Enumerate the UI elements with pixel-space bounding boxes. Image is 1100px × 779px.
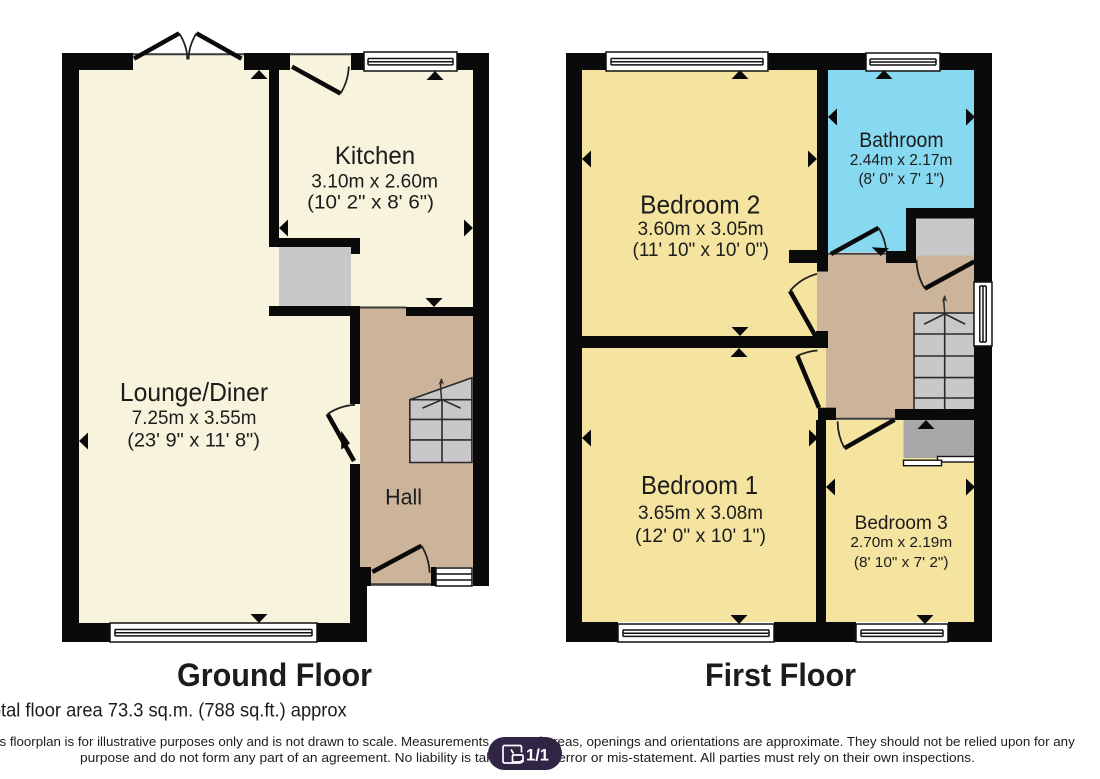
svg-text:Bedroom 2: Bedroom 2 [640, 190, 760, 220]
svg-text:(8' 0" x 7' 1"): (8' 0" x 7' 1") [858, 171, 944, 188]
svg-text:First Floor: First Floor [705, 657, 856, 693]
svg-text:3.10m x 2.60m: 3.10m x 2.60m [311, 172, 438, 193]
svg-text:Hall: Hall [385, 485, 422, 510]
svg-text:of areas, openings and orienta: of areas, openings and orientations are … [531, 734, 1076, 749]
svg-text:Bedroom 1: Bedroom 1 [641, 470, 758, 500]
svg-text:2.70m x 2.19m: 2.70m x 2.19m [850, 534, 952, 551]
svg-text:Total floor area 73.3 sq.m. (7: Total floor area 73.3 sq.m. (788 sq.ft.)… [0, 700, 347, 722]
svg-text:Bathroom: Bathroom [859, 128, 943, 152]
svg-text:3.65m x 3.08m: 3.65m x 3.08m [638, 503, 763, 524]
svg-text:(12' 0" x 10' 1"): (12' 0" x 10' 1") [635, 526, 766, 547]
svg-text:This floorplan is for illustra: This floorplan is for illustrative purpo… [0, 734, 490, 749]
svg-text:Ground Floor: Ground Floor [177, 657, 372, 693]
svg-text:(23' 9" x 11' 8"): (23' 9" x 11' 8") [127, 431, 260, 452]
svg-text:1/1: 1/1 [526, 747, 549, 765]
svg-text:(10' 2" x 8' 6"): (10' 2" x 8' 6") [307, 193, 434, 214]
svg-text:Kitchen: Kitchen [335, 142, 415, 170]
svg-text:3.60m x 3.05m: 3.60m x 3.05m [638, 219, 764, 240]
svg-text:7.25m x 3.55m: 7.25m x 3.55m [132, 408, 257, 429]
svg-text:(8' 10" x 7' 2"): (8' 10" x 7' 2") [854, 554, 949, 571]
svg-text:Lounge/Diner: Lounge/Diner [120, 377, 269, 407]
svg-text:2.44m x 2.17m: 2.44m x 2.17m [850, 152, 953, 169]
svg-text:(11' 10" x 10' 0"): (11' 10" x 10' 0") [633, 240, 769, 261]
svg-text:Bedroom 3: Bedroom 3 [855, 512, 948, 534]
